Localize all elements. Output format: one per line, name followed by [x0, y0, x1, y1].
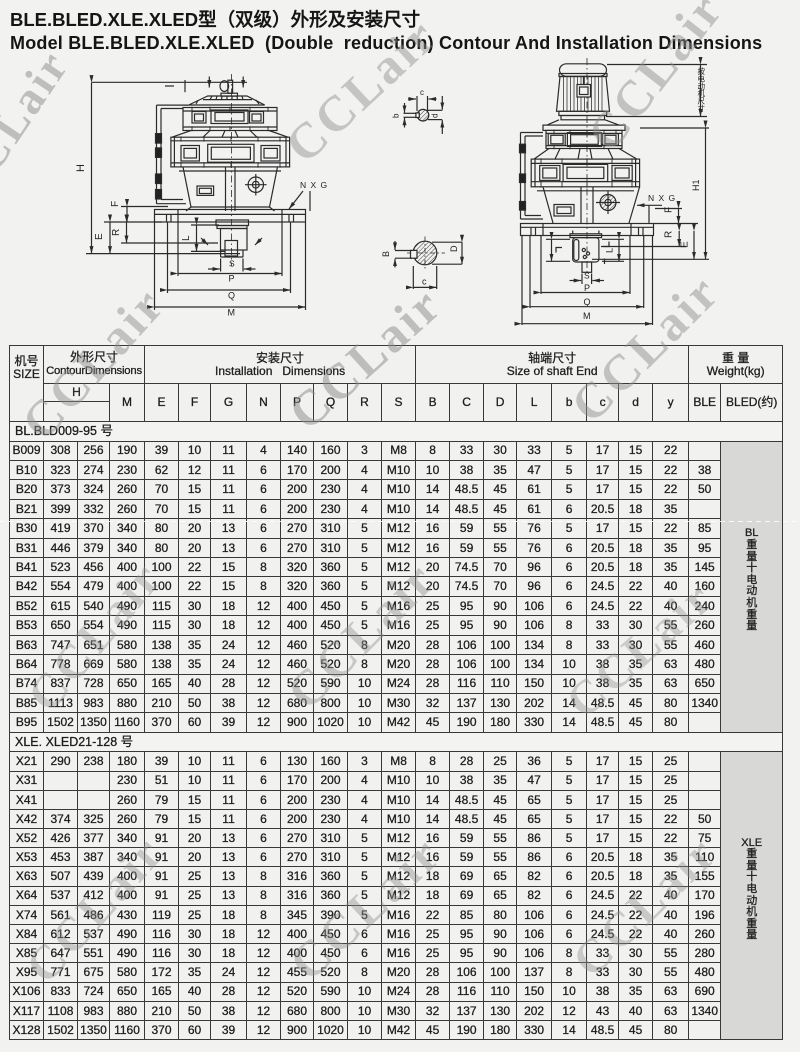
svg-text:M: M — [228, 308, 236, 318]
svg-text:N X G: N X G — [300, 180, 328, 190]
svg-text:H: H — [75, 164, 87, 172]
svg-text:E: E — [94, 233, 105, 240]
svg-text:D: D — [449, 245, 459, 252]
svg-text:R: R — [111, 229, 122, 236]
svg-text:d: d — [431, 114, 440, 118]
svg-text:S: S — [229, 259, 235, 269]
svg-text:c: c — [420, 88, 424, 97]
svg-text:B: B — [381, 251, 391, 257]
svg-text:P: P — [229, 274, 235, 284]
svg-text:H1: H1 — [691, 179, 701, 191]
svg-text:P: P — [584, 283, 590, 293]
svg-text:F: F — [664, 207, 675, 213]
svg-text:R: R — [664, 231, 675, 238]
svg-text:L: L — [605, 248, 615, 253]
svg-text:Q: Q — [584, 297, 591, 307]
svg-text:Q: Q — [228, 291, 235, 301]
svg-text:b: b — [392, 113, 401, 118]
svg-text:c: c — [422, 277, 427, 287]
svg-text:M: M — [583, 311, 591, 321]
svg-text:N X G: N X G — [648, 193, 676, 203]
svg-text:L: L — [181, 235, 192, 241]
svg-text:F: F — [110, 201, 121, 207]
svg-text:按电动机尺寸: 按电动机尺寸 — [698, 66, 706, 113]
svg-text:E: E — [680, 241, 691, 248]
svg-text:S: S — [584, 271, 590, 281]
